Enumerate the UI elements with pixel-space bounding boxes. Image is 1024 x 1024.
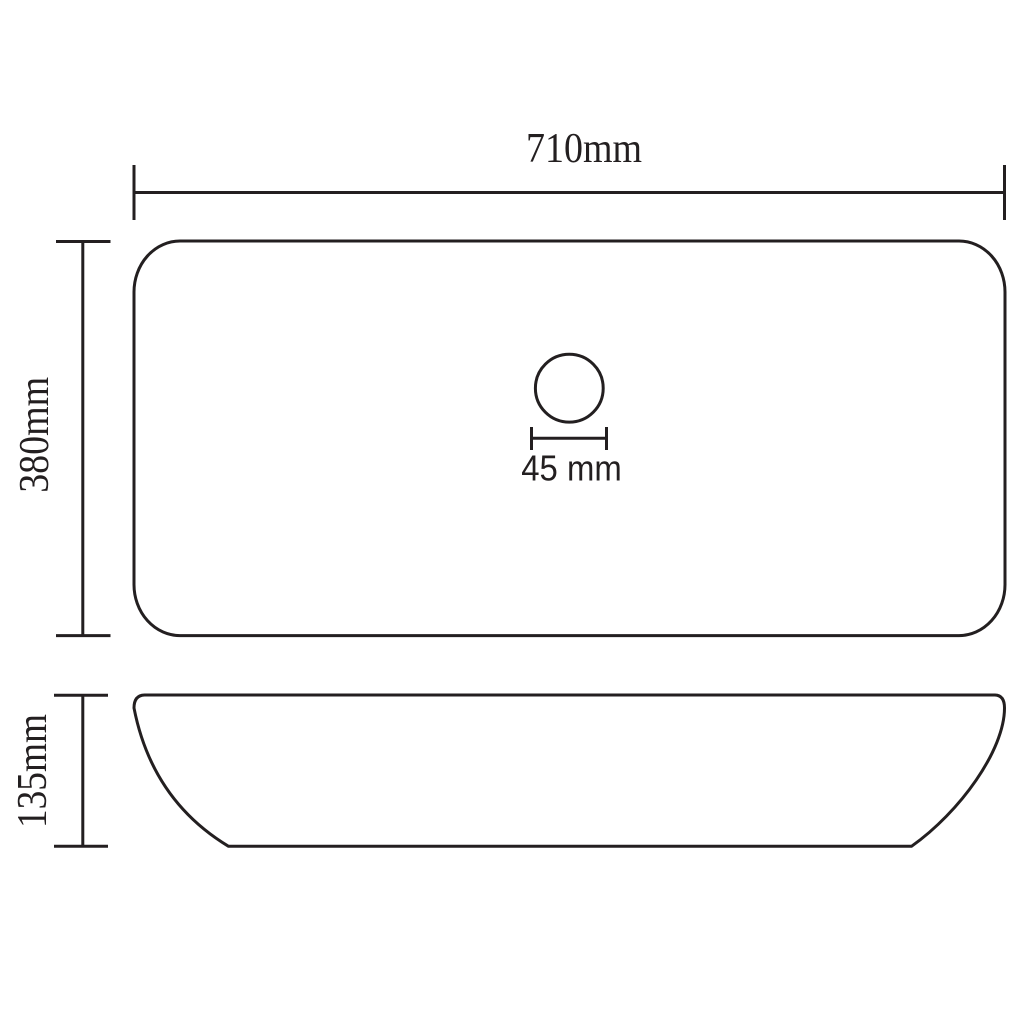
svg-text:380mm: 380mm xyxy=(12,377,58,493)
svg-text:710mm: 710mm xyxy=(526,126,642,172)
svg-text:135mm: 135mm xyxy=(10,714,56,828)
svg-text:45 mm: 45 mm xyxy=(521,448,622,489)
